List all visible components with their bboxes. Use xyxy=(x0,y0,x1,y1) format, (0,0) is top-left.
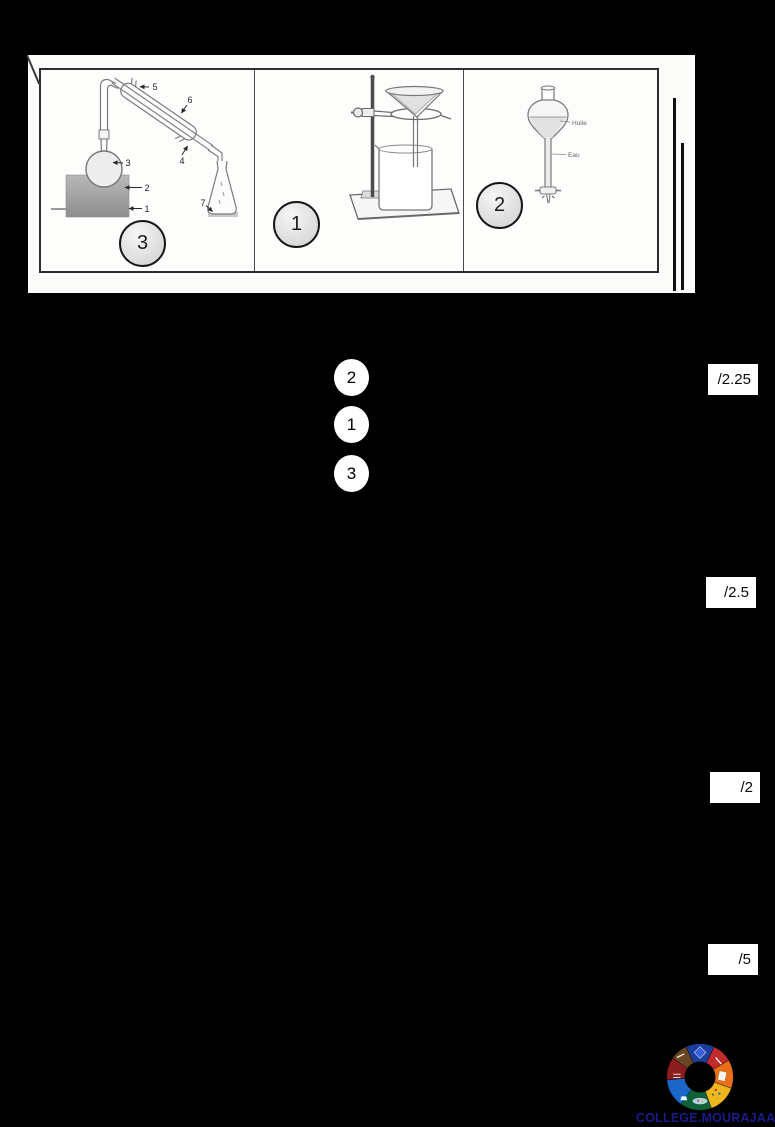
map-dot-icon xyxy=(701,1101,703,1103)
collegemourajaa-logo xyxy=(663,1040,737,1114)
answer-badge: 1 xyxy=(334,406,369,443)
part-label-3: 3 xyxy=(125,158,130,168)
apparatus-badge: 1 xyxy=(273,201,320,248)
separating-funnel-diagram: Huile Eau xyxy=(464,70,657,271)
layer-label-oil: Huile xyxy=(572,120,587,127)
page-edge-line xyxy=(681,143,684,290)
answer-badge: 3 xyxy=(334,455,369,492)
apparatus-badge-number: 2 xyxy=(494,194,505,217)
part-label-6: 6 xyxy=(187,95,192,105)
part-label-1: 1 xyxy=(144,204,149,214)
answer-number: 2 xyxy=(347,368,356,388)
cell-decantation: Huile Eau 2 xyxy=(464,70,657,271)
cell-filtration: 1 xyxy=(255,70,464,271)
flask-icon xyxy=(681,1096,687,1100)
part-label-4: 4 xyxy=(179,156,184,166)
cell-distillation: 5 6 4 3 2 1 7 3 xyxy=(41,70,255,271)
score-box: /2.5 xyxy=(706,577,756,608)
apparatus-figure-panel: 5 6 4 3 2 1 7 3 xyxy=(28,55,695,293)
part-label-5: 5 xyxy=(152,82,157,92)
score-value: /2.5 xyxy=(724,584,749,601)
score-box: /5 xyxy=(708,944,758,975)
page-edge-line xyxy=(673,98,676,291)
score-box: /2.25 xyxy=(708,364,758,395)
logo-ring-icon xyxy=(663,1040,737,1114)
confetti-icon xyxy=(715,1089,717,1091)
answer-number: 3 xyxy=(347,464,356,484)
answer-badge: 2 xyxy=(334,359,369,396)
score-value: /2 xyxy=(740,779,753,796)
score-box: /2 xyxy=(710,772,760,803)
confetti-icon xyxy=(718,1093,720,1095)
logo-caption: COLLEGE.MOURAJAA.COM xyxy=(636,1111,775,1125)
apparatus-badge: 2 xyxy=(476,182,523,229)
apparatus-badge-number: 3 xyxy=(137,232,148,255)
score-value: /5 xyxy=(738,951,751,968)
part-label-2: 2 xyxy=(144,183,149,193)
apparatus-badge-number: 1 xyxy=(291,213,302,236)
part-label-7: 7 xyxy=(200,198,205,208)
scanned-exam-page: 5 6 4 3 2 1 7 3 xyxy=(0,0,775,1127)
layer-label-water: Eau xyxy=(568,152,580,159)
confetti-icon xyxy=(712,1093,714,1095)
apparatus-table: 5 6 4 3 2 1 7 3 xyxy=(39,68,659,273)
map-dot-icon xyxy=(697,1100,699,1102)
world-map-icon xyxy=(693,1098,708,1104)
answer-number: 1 xyxy=(347,415,356,435)
paper-icon xyxy=(718,1071,727,1082)
apparatus-badge: 3 xyxy=(119,220,166,267)
score-value: /2.25 xyxy=(718,371,751,388)
